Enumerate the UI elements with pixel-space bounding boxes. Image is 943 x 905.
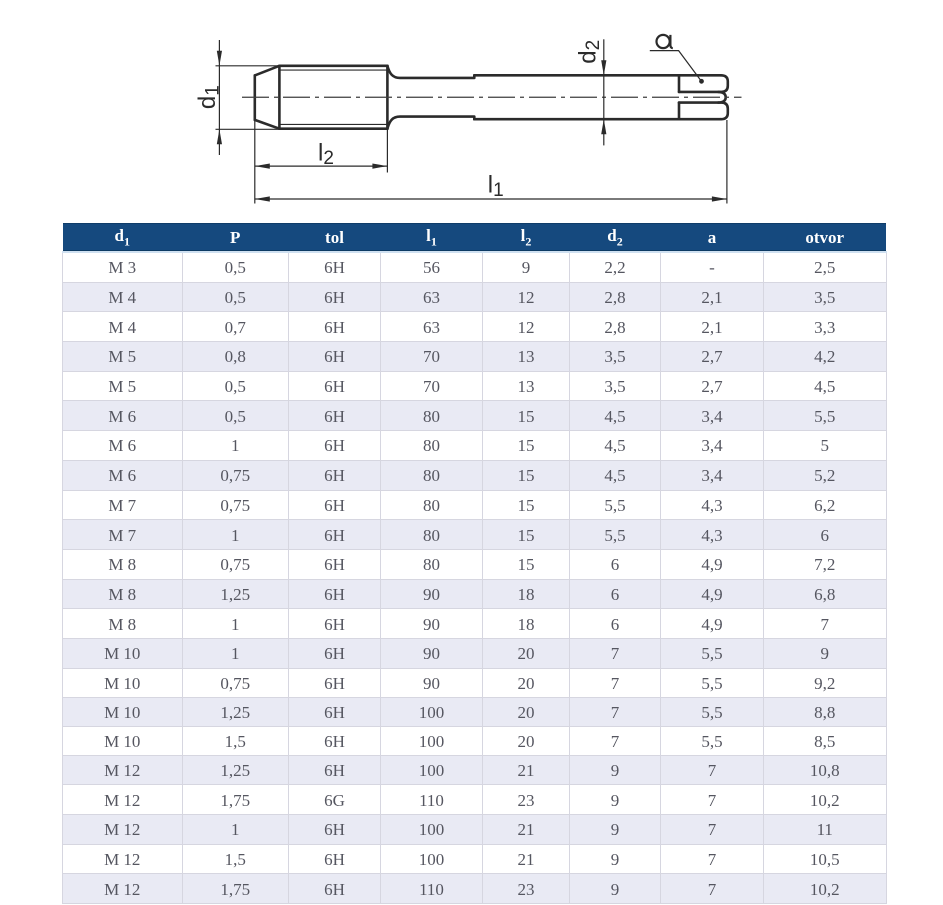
svg-text:l2: l2 bbox=[318, 139, 334, 169]
svg-text:l1: l1 bbox=[488, 172, 504, 202]
svg-text:d2: d2 bbox=[574, 40, 604, 64]
svg-text:d1: d1 bbox=[194, 85, 224, 109]
